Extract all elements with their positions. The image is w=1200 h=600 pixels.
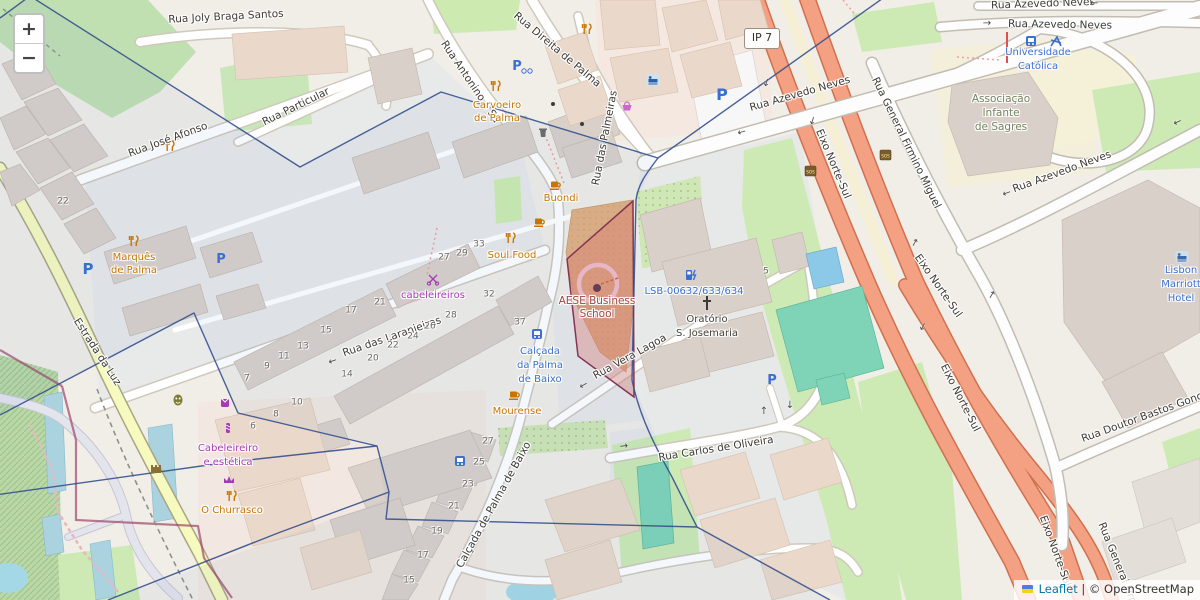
sos-icon: SOS xyxy=(880,150,891,160)
svg-text:P: P xyxy=(512,59,522,74)
openstreetmap-link[interactable]: © OpenStreetMap xyxy=(1089,582,1194,596)
zoom-control: + − xyxy=(13,13,45,74)
sos-icon: SOS xyxy=(805,166,816,176)
map-tiles: SOS SOS P P P P P xyxy=(0,0,1200,600)
svg-text:P: P xyxy=(716,85,728,104)
svg-text:SOS: SOS xyxy=(881,154,890,159)
svg-text:P: P xyxy=(83,260,94,278)
gate-icon xyxy=(551,102,555,106)
zoom-out-button[interactable]: − xyxy=(15,44,43,72)
leaflet-map-canvas[interactable]: SOS SOS P P P P P Rua Joly Braga Santos … xyxy=(0,0,1200,600)
ukraine-flag-icon xyxy=(1022,585,1033,593)
zoom-in-button[interactable]: + xyxy=(15,15,43,44)
attribution-bar: Leaflet | © OpenStreetMap xyxy=(1014,580,1200,600)
svg-text:SOS: SOS xyxy=(806,170,815,175)
attribution-separator: | xyxy=(1081,582,1085,596)
svg-text:P: P xyxy=(767,373,777,388)
gate-icon xyxy=(580,122,584,126)
leaflet-link[interactable]: Leaflet xyxy=(1039,582,1078,596)
svg-text:P: P xyxy=(216,252,226,267)
road-ref-shield: IP 7 xyxy=(744,28,780,49)
